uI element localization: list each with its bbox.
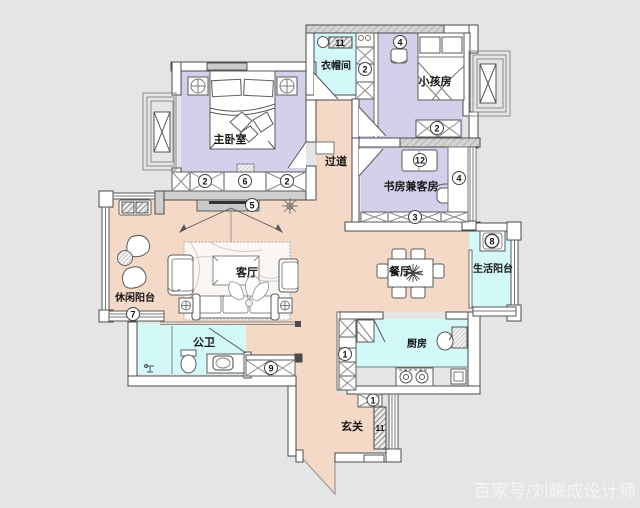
svg-text:过道: 过道 [325, 154, 347, 168]
svg-text:餐厅: 餐厅 [388, 264, 411, 278]
svg-text:3: 3 [412, 213, 417, 223]
svg-text:玄关: 玄关 [341, 419, 363, 433]
svg-text:主卧室: 主卧室 [214, 132, 247, 146]
svg-text:2: 2 [202, 177, 207, 187]
svg-text:公卫: 公卫 [193, 336, 215, 349]
svg-text:百家号/刘耀成设计师: 百家号/刘耀成设计师 [474, 481, 636, 501]
svg-text:厨房: 厨房 [407, 337, 427, 350]
svg-text:5: 5 [249, 201, 254, 211]
svg-text:2: 2 [362, 65, 367, 75]
svg-text:6: 6 [242, 177, 247, 187]
svg-text:8: 8 [489, 237, 494, 247]
svg-text:小孩房: 小孩房 [418, 74, 452, 88]
svg-text:1: 1 [370, 396, 375, 406]
svg-text:11: 11 [376, 423, 385, 433]
svg-text:衣帽间: 衣帽间 [321, 59, 351, 72]
svg-text:1: 1 [342, 350, 347, 360]
svg-text:书房兼客房: 书房兼客房 [384, 179, 439, 193]
svg-text:客厅: 客厅 [235, 265, 258, 279]
svg-text:11: 11 [335, 38, 345, 48]
svg-text:休闲阳台: 休闲阳台 [114, 291, 155, 304]
svg-text:4: 4 [456, 174, 461, 184]
svg-text:7: 7 [130, 310, 135, 320]
svg-text:2: 2 [434, 124, 439, 134]
svg-text:2: 2 [284, 177, 289, 187]
svg-text:4: 4 [397, 38, 402, 48]
svg-text:9: 9 [268, 364, 273, 374]
svg-text:12: 12 [415, 156, 425, 166]
svg-text:生活阳台: 生活阳台 [473, 262, 513, 275]
